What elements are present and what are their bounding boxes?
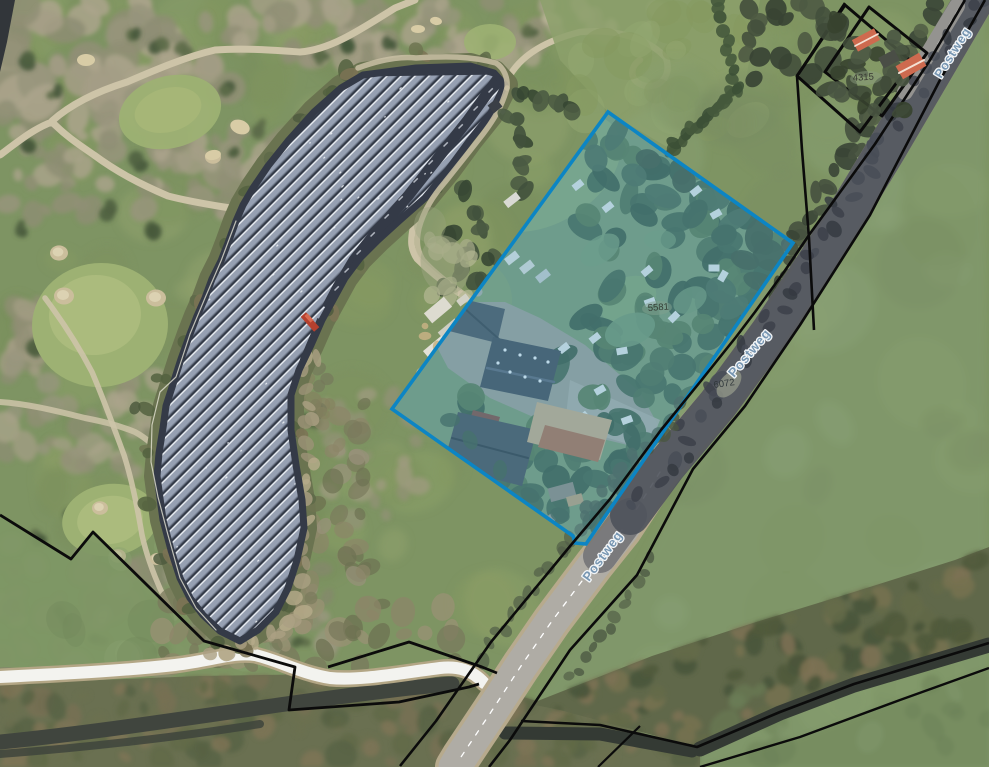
- svg-text:5581: 5581: [647, 302, 669, 314]
- svg-text:4315: 4315: [852, 72, 874, 84]
